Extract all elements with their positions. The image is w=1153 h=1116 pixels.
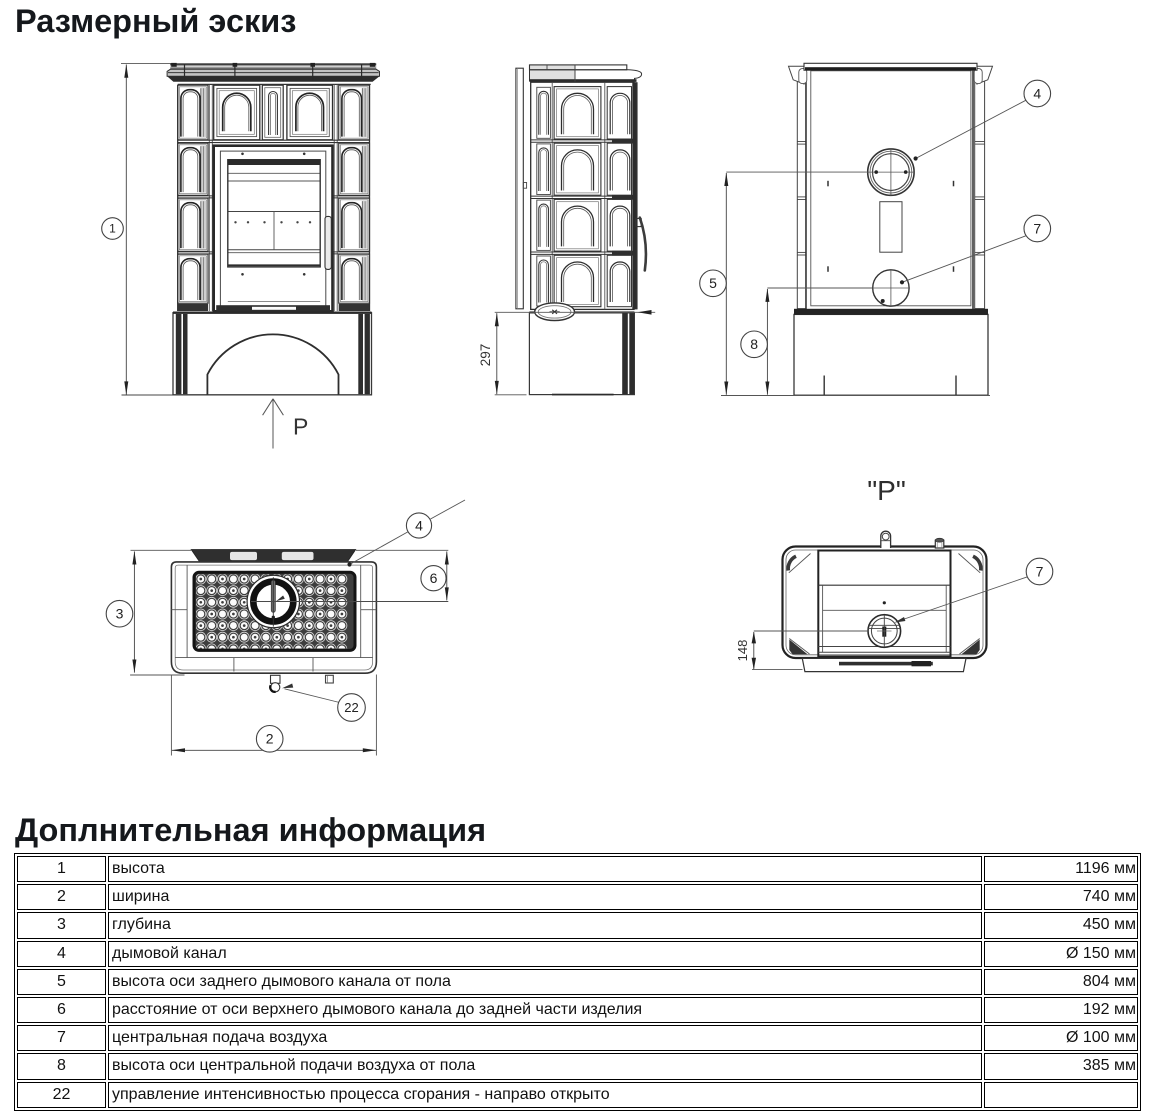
svg-text:5: 5 [709,275,717,291]
svg-text:6: 6 [430,570,438,586]
svg-text:7: 7 [1036,563,1044,579]
svg-text:22: 22 [344,700,358,715]
svg-text:1: 1 [109,222,116,236]
svg-text:4: 4 [415,517,423,533]
svg-text:4: 4 [1033,85,1041,101]
svg-text:"P": "P" [867,475,906,506]
svg-text:148: 148 [735,640,750,662]
svg-text:297: 297 [478,344,493,367]
svg-text:P: P [293,414,308,440]
svg-text:7: 7 [1033,220,1041,236]
svg-text:2: 2 [266,731,274,747]
svg-text:8: 8 [750,336,758,352]
svg-text:3: 3 [116,606,124,622]
